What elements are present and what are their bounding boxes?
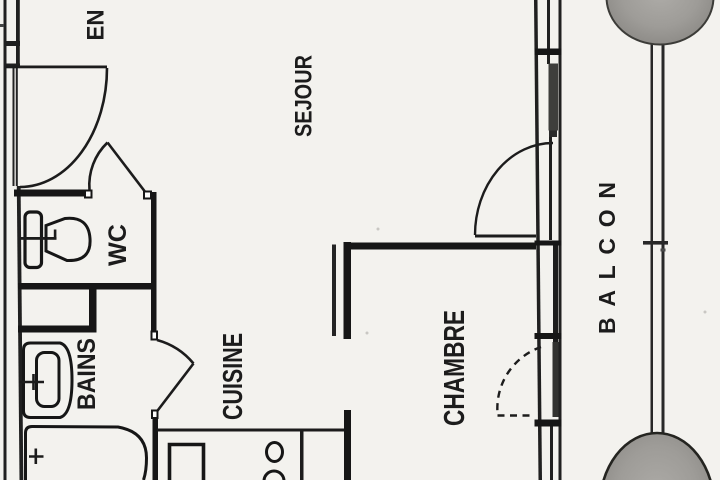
svg-text:BAINS: BAINS — [73, 338, 101, 410]
svg-text:CUISINE: CUISINE — [217, 333, 248, 420]
svg-text:SEJOUR: SEJOUR — [291, 55, 318, 137]
svg-text:WC: WC — [104, 224, 132, 266]
svg-text:CHAMBRE: CHAMBRE — [439, 310, 471, 426]
svg-text:EN: EN — [83, 10, 110, 41]
